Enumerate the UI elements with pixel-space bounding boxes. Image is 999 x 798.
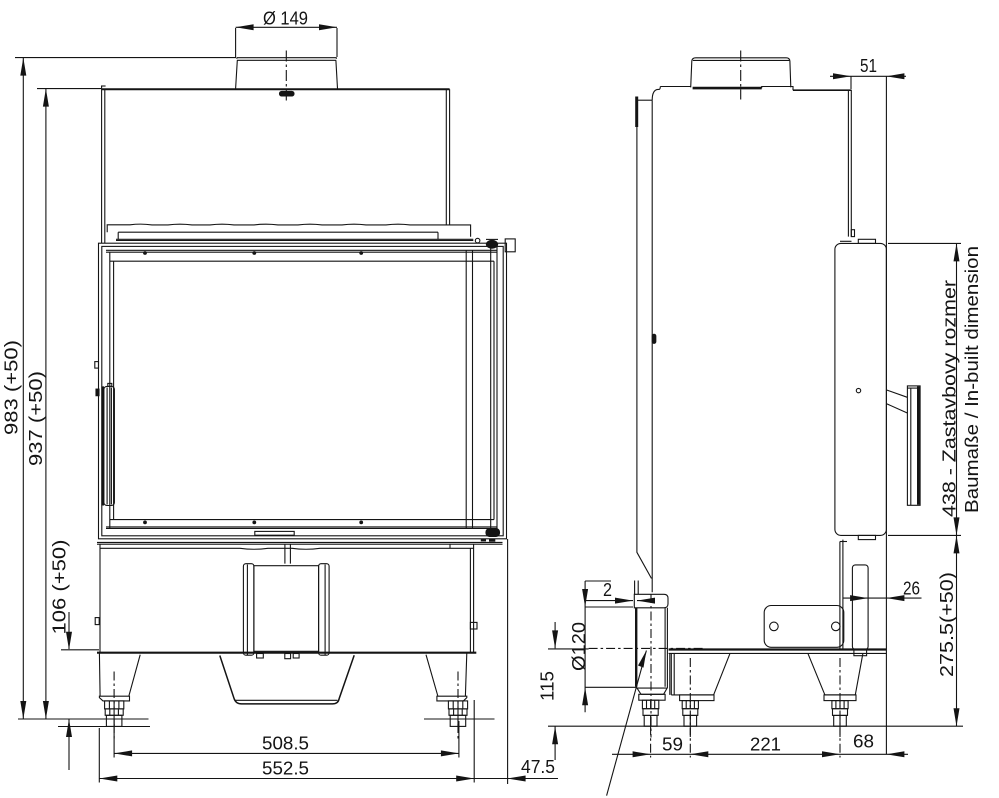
svg-text:47.5: 47.5 <box>521 757 555 777</box>
svg-text:106 (+50): 106 (+50) <box>50 540 70 635</box>
svg-text:552.5: 552.5 <box>262 759 309 779</box>
svg-text:Ø 149: Ø 149 <box>263 9 308 29</box>
svg-text:221: 221 <box>750 735 781 755</box>
svg-text:Baumaße / In-built dimension: Baumaße / In-built dimension <box>962 246 982 513</box>
svg-text:51: 51 <box>860 56 877 76</box>
svg-text:2: 2 <box>603 580 612 600</box>
svg-text:983 (+50): 983 (+50) <box>2 340 22 435</box>
svg-text:937 (+50): 937 (+50) <box>26 371 46 466</box>
svg-text:59: 59 <box>662 735 683 755</box>
svg-text:508.5: 508.5 <box>262 734 309 754</box>
svg-text:26: 26 <box>903 579 920 599</box>
svg-text:68: 68 <box>853 732 874 752</box>
svg-text:438 - Zastavbovy rozmer: 438 - Zastavbovy rozmer <box>940 280 960 517</box>
svg-text:115: 115 <box>538 671 558 701</box>
svg-text:Ø120: Ø120 <box>569 622 589 671</box>
svg-text:275.5(+50): 275.5(+50) <box>937 572 957 677</box>
